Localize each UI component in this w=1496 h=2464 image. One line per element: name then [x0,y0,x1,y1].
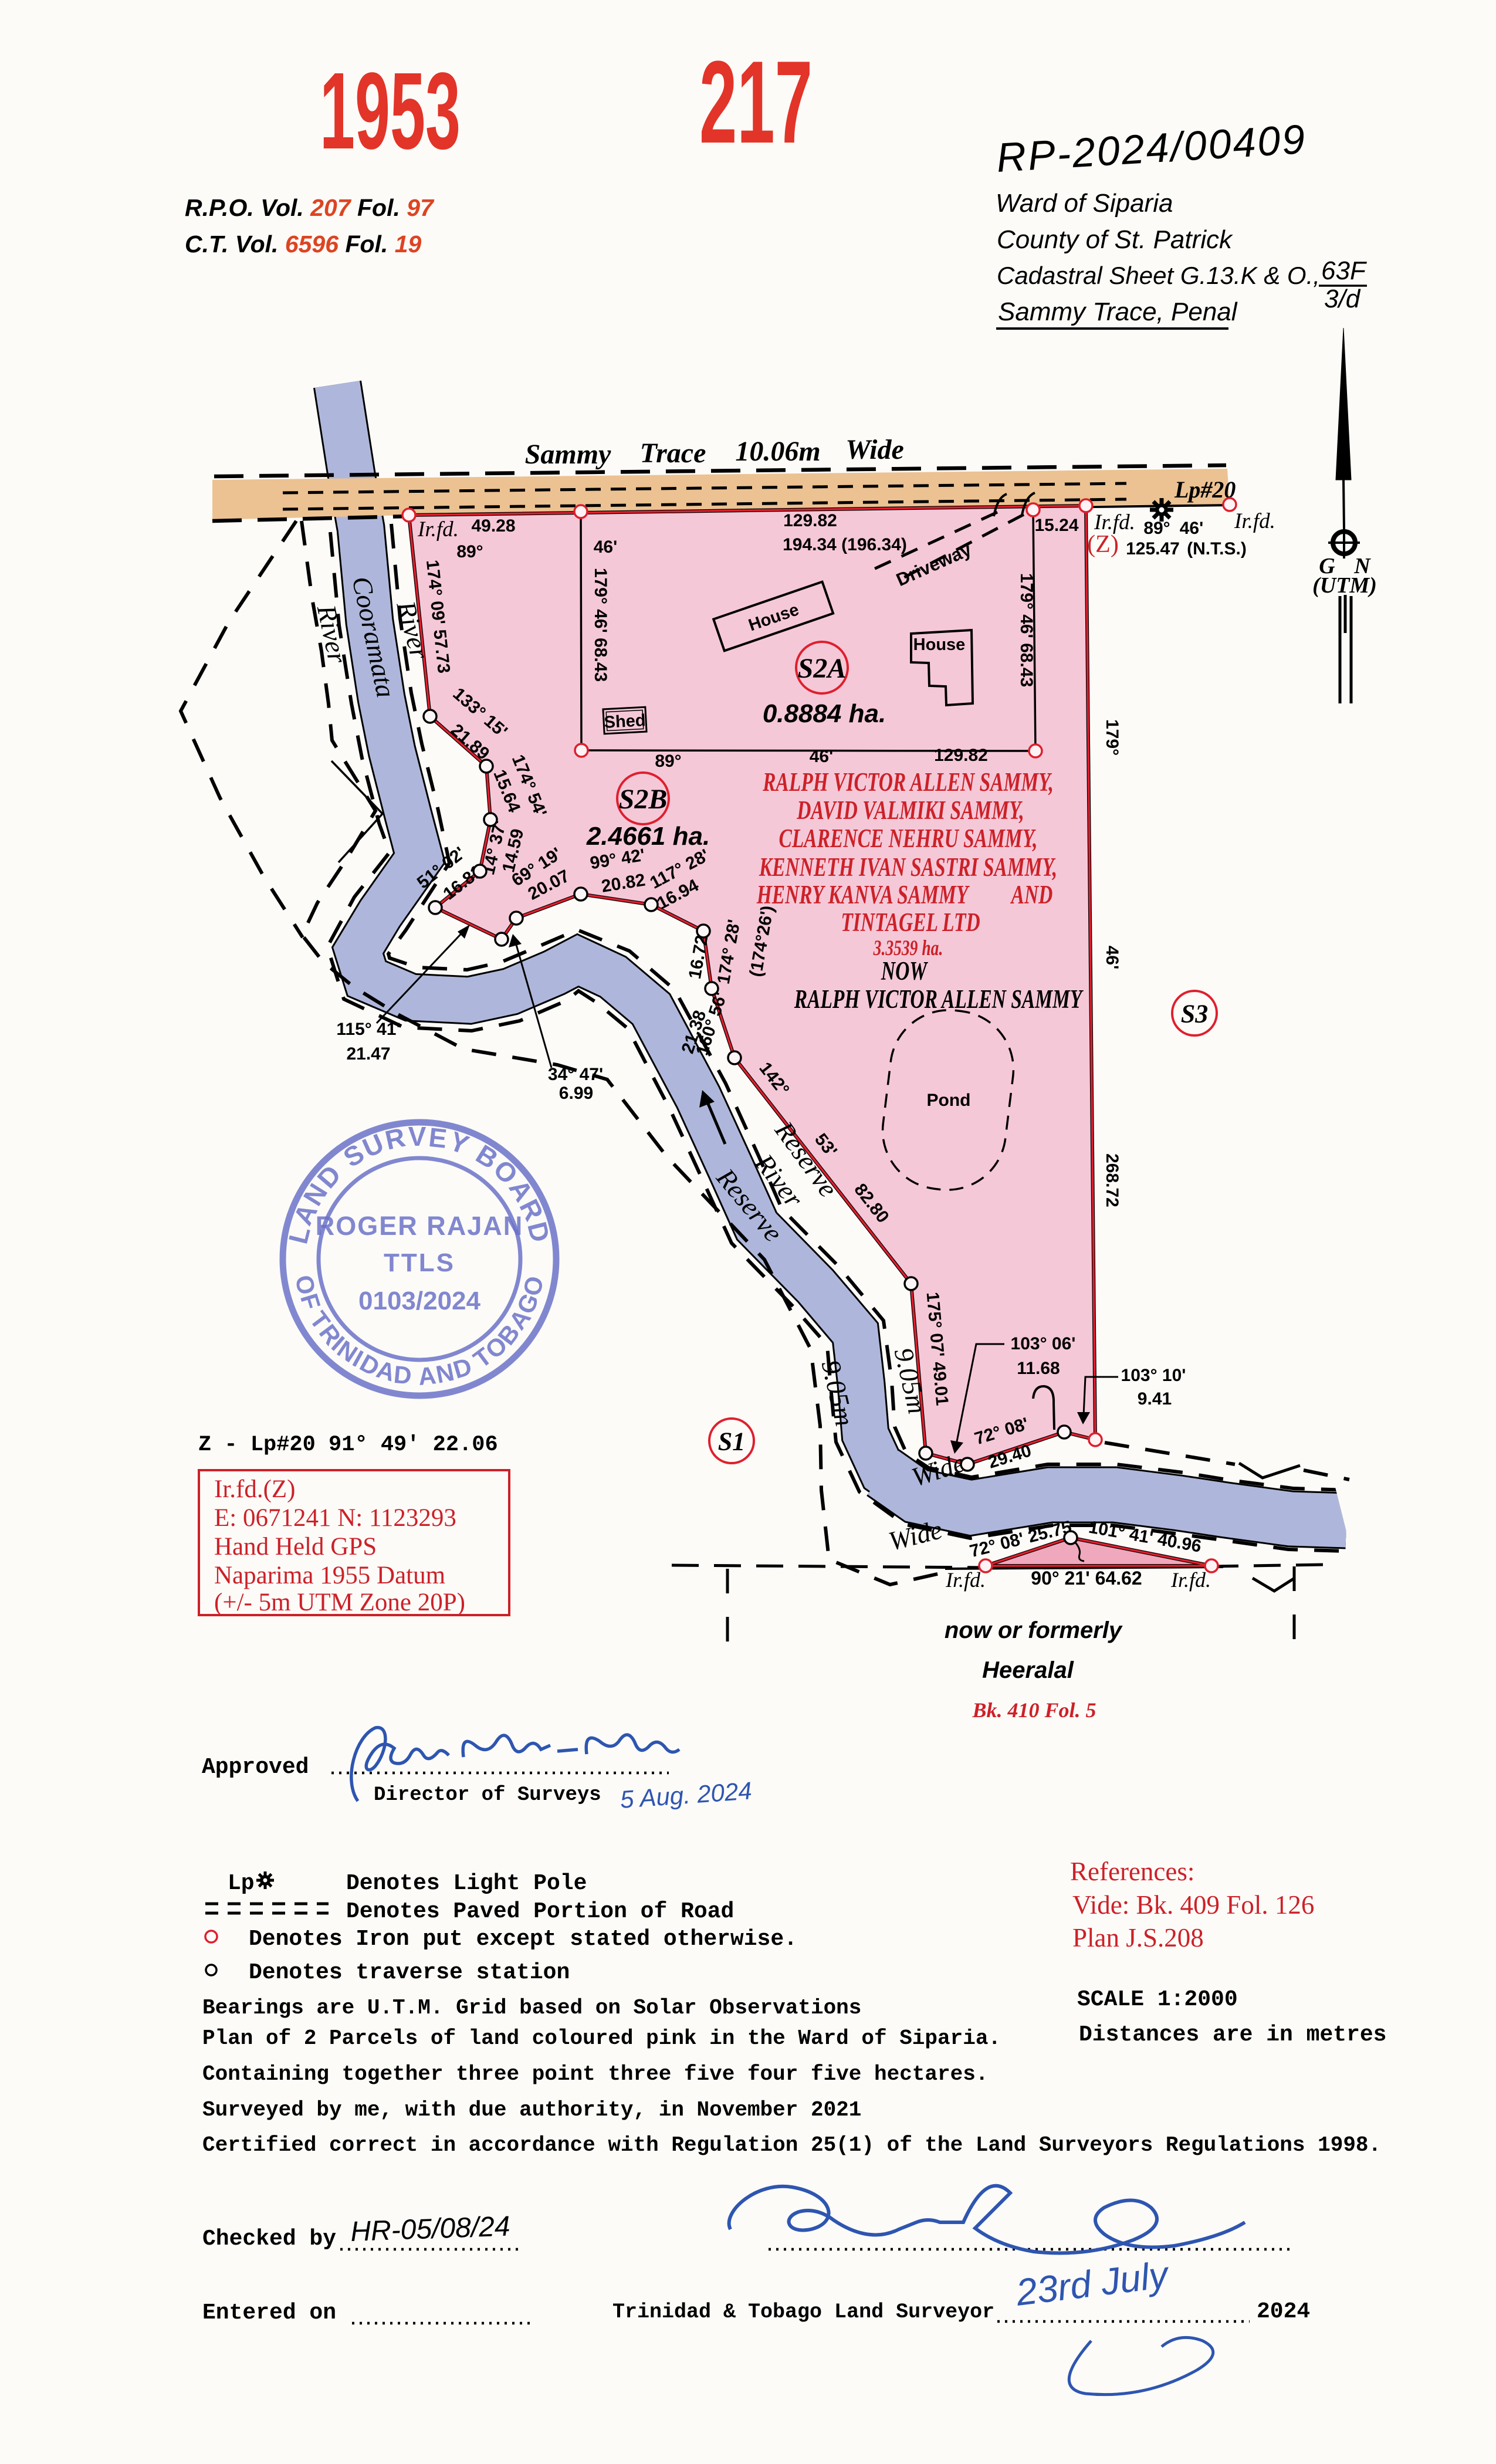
svg-text:Containing together three poin: Containing together three point three fi… [202,2062,988,2086]
svg-text:SCALE 1:2000: SCALE 1:2000 [1077,1987,1238,2012]
svg-text:125.47: 125.47 [1126,539,1180,559]
svg-text:Checked by: Checked by [202,2226,336,2252]
svg-text:Ir.fd.(Z): Ir.fd.(Z) [214,1475,296,1503]
svg-text:103° 06': 103° 06' [1011,1334,1076,1353]
svg-text:2024: 2024 [1257,2299,1310,2324]
svg-text:Trinidad & Tobago Land Surveyo: Trinidad & Tobago Land Surveyor [612,2300,994,2324]
svg-text:46': 46' [810,747,834,766]
svg-text:89°: 89° [1143,519,1170,538]
svg-text:Surveyed by me, with due autho: Surveyed by me, with due authority, in N… [202,2098,861,2122]
svg-text:Certified correct in accordanc: Certified correct in accordance with Reg… [202,2133,1381,2157]
svg-text:15.24: 15.24 [1034,516,1078,535]
svg-text:46': 46' [594,537,618,557]
svg-text:Trace: Trace [640,438,706,469]
svg-text:now or formerly: now or formerly [945,1617,1123,1643]
svg-text:Bk. 410 Fol. 5: Bk. 410 Fol. 5 [972,1698,1096,1722]
svg-text:46': 46' [1180,519,1204,538]
svg-text:179° 46' 68.43: 179° 46' 68.43 [1017,573,1036,687]
svg-text:TTLS: TTLS [384,1248,455,1277]
svg-text:Plan of 2 Parcels of land colo: Plan of 2 Parcels of land coloured pink … [202,2026,1001,2050]
svg-text:6.99: 6.99 [559,1084,593,1103]
svg-text:HR-05/08/24: HR-05/08/24 [350,2211,511,2248]
svg-text:Bearings are U.T.M. Grid based: Bearings are U.T.M. Grid based on Solar … [202,1996,861,2020]
svg-text:AND: AND [1010,880,1052,909]
svg-text:Ir.fd.: Ir.fd. [1234,509,1275,533]
svg-text:1953: 1953 [320,50,461,172]
svg-text:115° 41': 115° 41' [336,1020,400,1039]
svg-text:194.34 (196.34): 194.34 (196.34) [783,535,907,554]
svg-text:RALPH VICTOR ALLEN SAMMY,: RALPH VICTOR ALLEN SAMMY, [762,767,1054,797]
svg-text:References:: References: [1070,1857,1194,1886]
svg-text:NOW: NOW [881,956,928,986]
svg-text:Wide: Wide [845,434,904,465]
svg-text:(N.T.S.): (N.T.S.) [1187,539,1247,559]
svg-text:R.P.O. Vol. 207 Fol. 97: R.P.O. Vol. 207 Fol. 97 [185,194,435,221]
svg-text:Cadastral Sheet G.13.K & O.,: Cadastral Sheet G.13.K & O., [997,262,1320,289]
svg-text:Pond: Pond [927,1091,971,1110]
svg-text:Z - Lp#20 91° 49' 22.06: Z - Lp#20 91° 49' 22.06 [198,1433,498,1457]
svg-text:Ir.fd.: Ir.fd. [945,1568,986,1592]
svg-text:Ir.fd.: Ir.fd. [417,517,459,541]
svg-text:34° 47': 34° 47' [548,1065,603,1084]
svg-text:Shed: Shed [604,711,646,732]
svg-text:129.82: 129.82 [783,511,837,530]
svg-text:46': 46' [1102,946,1122,970]
svg-text:TINTAGEL LTD: TINTAGEL LTD [841,908,980,937]
svg-text:Hand Held GPS: Hand Held GPS [214,1533,377,1561]
svg-text:11.68: 11.68 [1017,1359,1060,1378]
svg-text:Vide: Bk. 409 Fol. 126: Vide: Bk. 409 Fol. 126 [1072,1890,1314,1920]
svg-text:Denotes traverse station: Denotes traverse station [249,1960,570,1985]
svg-text:3/d: 3/d [1324,285,1361,313]
svg-text:103° 10': 103° 10' [1121,1366,1186,1385]
svg-text:Sammy: Sammy [525,439,611,470]
svg-text:0.8884 ha.: 0.8884 ha. [763,699,886,728]
svg-text:S1: S1 [718,1427,745,1456]
svg-text:Lp: Lp [228,1871,255,1896]
svg-text:HENRY KANVA SAMMY: HENRY KANVA SAMMY [756,880,970,909]
svg-text:S2A: S2A [798,653,847,684]
svg-text:ROGER RAJAN: ROGER RAJAN [316,1211,524,1241]
svg-text:89°: 89° [456,542,483,561]
svg-text:(+/- 5m UTM Zone 20P): (+/- 5m UTM Zone 20P) [214,1589,465,1616]
svg-text:179°: 179° [1102,719,1122,756]
svg-text:49.28: 49.28 [471,516,515,536]
svg-text:Ward of Siparia: Ward of Siparia [996,189,1173,218]
svg-text:(Z): (Z) [1087,531,1119,558]
svg-text:Distances are in metres: Distances are in metres [1079,2022,1387,2047]
svg-text:House: House [913,635,966,654]
svg-text:89°: 89° [655,752,681,771]
svg-text:S2B: S2B [619,784,668,815]
svg-text:RALPH VICTOR ALLEN SAMMY: RALPH VICTOR ALLEN SAMMY [794,984,1084,1014]
svg-text:CLARENCE NEHRU SAMMY,: CLARENCE NEHRU SAMMY, [779,824,1038,853]
svg-text:9.41: 9.41 [1138,1389,1172,1409]
svg-text:Ir.fd.: Ir.fd. [1170,1568,1211,1592]
svg-text:2.4661 ha.: 2.4661 ha. [586,822,710,851]
svg-text:S3: S3 [1181,999,1208,1028]
svg-text:(UTM): (UTM) [1312,573,1377,598]
svg-text:KENNETH IVAN SASTRI SAMMY,: KENNETH IVAN SASTRI SAMMY, [759,852,1057,882]
svg-text:Heeralal: Heeralal [982,1657,1074,1683]
svg-text:217: 217 [699,37,813,168]
svg-text:DAVID VALMIKI SAMMY,: DAVID VALMIKI SAMMY, [796,796,1024,825]
svg-text:0103/2024: 0103/2024 [358,1287,481,1315]
svg-text:10.06m: 10.06m [735,436,820,467]
svg-text:179° 46' 68.43: 179° 46' 68.43 [591,568,610,682]
svg-text:268.72: 268.72 [1102,1153,1122,1207]
svg-text:Approved: Approved [202,1755,309,1780]
svg-text:90° 21' 64.62: 90° 21' 64.62 [1031,1568,1142,1589]
svg-text:Denotes Light Pole: Denotes Light Pole [346,1871,587,1896]
svg-text:E: 0671241 N: 1123293: E: 0671241 N: 1123293 [214,1504,456,1532]
svg-text:Entered on: Entered on [202,2300,336,2326]
svg-text:C.T. Vol. 6596 Fol. 19: C.T. Vol. 6596 Fol. 19 [185,231,422,258]
svg-text:County of St. Patrick: County of St. Patrick [997,225,1233,254]
svg-text:129.82: 129.82 [934,746,988,765]
svg-text:Sammy Trace, Penal: Sammy Trace, Penal [998,297,1238,326]
svg-text:Denotes Iron put except stated: Denotes Iron put except stated otherwise… [249,1927,797,1952]
svg-text:Naparima 1955 Datum: Naparima 1955 Datum [214,1562,445,1589]
svg-text:63F: 63F [1321,256,1367,285]
svg-text:Plan J.S.208: Plan J.S.208 [1072,1923,1204,1952]
svg-text:Denotes Paved Portion of Road: Denotes Paved Portion of Road [346,1899,734,1924]
svg-text:Director of Surveys: Director of Surveys [374,1784,601,1806]
svg-text:21.47: 21.47 [346,1044,390,1064]
